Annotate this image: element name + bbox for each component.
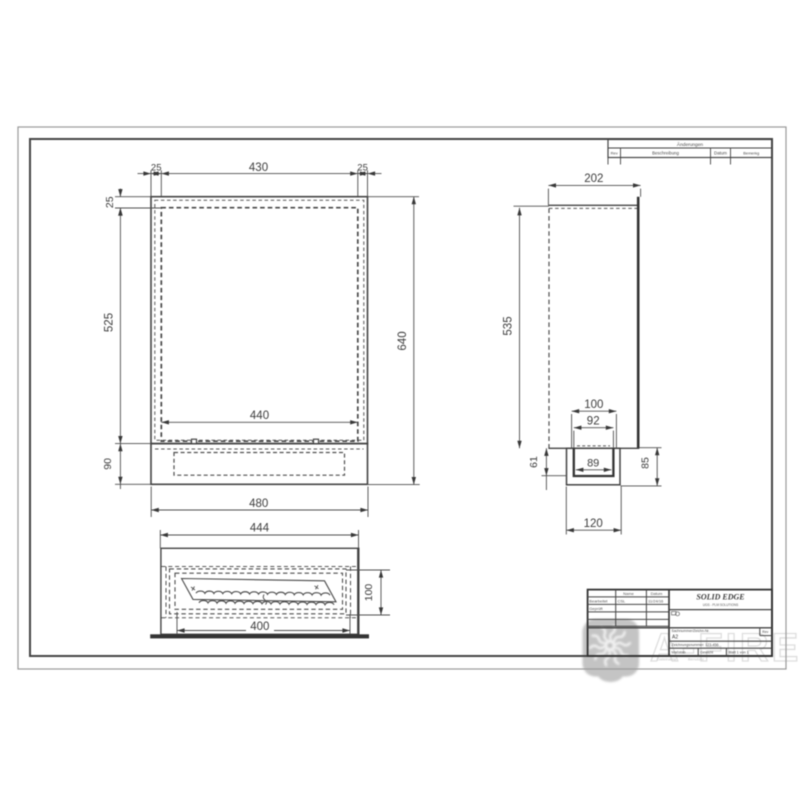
svg-text:11/24/16: 11/24/16 xyxy=(648,599,664,604)
svg-text:100: 100 xyxy=(363,584,375,602)
svg-text:25: 25 xyxy=(151,163,162,174)
svg-text:Bemerkg: Bemerkg xyxy=(743,151,759,156)
svg-text:400: 400 xyxy=(250,621,269,633)
svg-text:Maßstab: Maßstab xyxy=(672,651,686,655)
svg-text:Bearbeitet: Bearbeitet xyxy=(589,599,608,604)
svg-text:Geprüft: Geprüft xyxy=(589,606,603,611)
svg-text:Sachnummer/Zeichn-Nr.: Sachnummer/Zeichn-Nr. xyxy=(672,629,710,633)
svg-text:Zeichnungsnummer: 123-456: Zeichnungsnummer: 123-456 xyxy=(672,643,719,647)
svg-text:Rev: Rev xyxy=(762,630,768,634)
svg-text:Rev: Rev xyxy=(611,151,618,156)
svg-text:85: 85 xyxy=(640,457,652,469)
svg-text:Beschreibung: Beschreibung xyxy=(652,151,679,156)
svg-text:Name: Name xyxy=(623,591,634,596)
svg-text:89: 89 xyxy=(587,458,599,470)
svg-text:CSL: CSL xyxy=(618,599,627,604)
svg-text:61: 61 xyxy=(528,456,540,468)
svg-text:480: 480 xyxy=(249,498,268,510)
svg-text:25: 25 xyxy=(104,196,116,208)
svg-text:444: 444 xyxy=(250,523,270,535)
svg-text:Blatt 1 von 1: Blatt 1 von 1 xyxy=(729,651,749,655)
svg-text:120: 120 xyxy=(584,518,603,530)
svg-text:Gewicht: Gewicht xyxy=(700,651,713,655)
svg-text:Datum: Datum xyxy=(651,591,663,596)
svg-text:Änderungen: Änderungen xyxy=(677,141,703,148)
svg-text:202: 202 xyxy=(584,173,603,185)
svg-text:100: 100 xyxy=(584,399,603,411)
svg-text:UGS - PLM SOLUTIONS: UGS - PLM SOLUTIONS xyxy=(703,603,739,607)
svg-text:525: 525 xyxy=(104,313,116,332)
svg-text:535: 535 xyxy=(502,316,514,335)
svg-text:430: 430 xyxy=(249,162,268,174)
svg-text:A2: A2 xyxy=(672,635,678,641)
svg-text:Datum: Datum xyxy=(714,151,727,156)
svg-text:640: 640 xyxy=(397,331,409,350)
svg-text:SOLID EDGE: SOLID EDGE xyxy=(696,593,744,602)
svg-text:90: 90 xyxy=(102,458,114,470)
svg-text:Benutzer: Benutzer xyxy=(688,657,705,662)
svg-text:92: 92 xyxy=(587,415,600,427)
svg-text:440: 440 xyxy=(250,410,269,422)
svg-text:25: 25 xyxy=(357,163,368,174)
svg-text:Dateiname: Dateiname xyxy=(657,657,677,662)
